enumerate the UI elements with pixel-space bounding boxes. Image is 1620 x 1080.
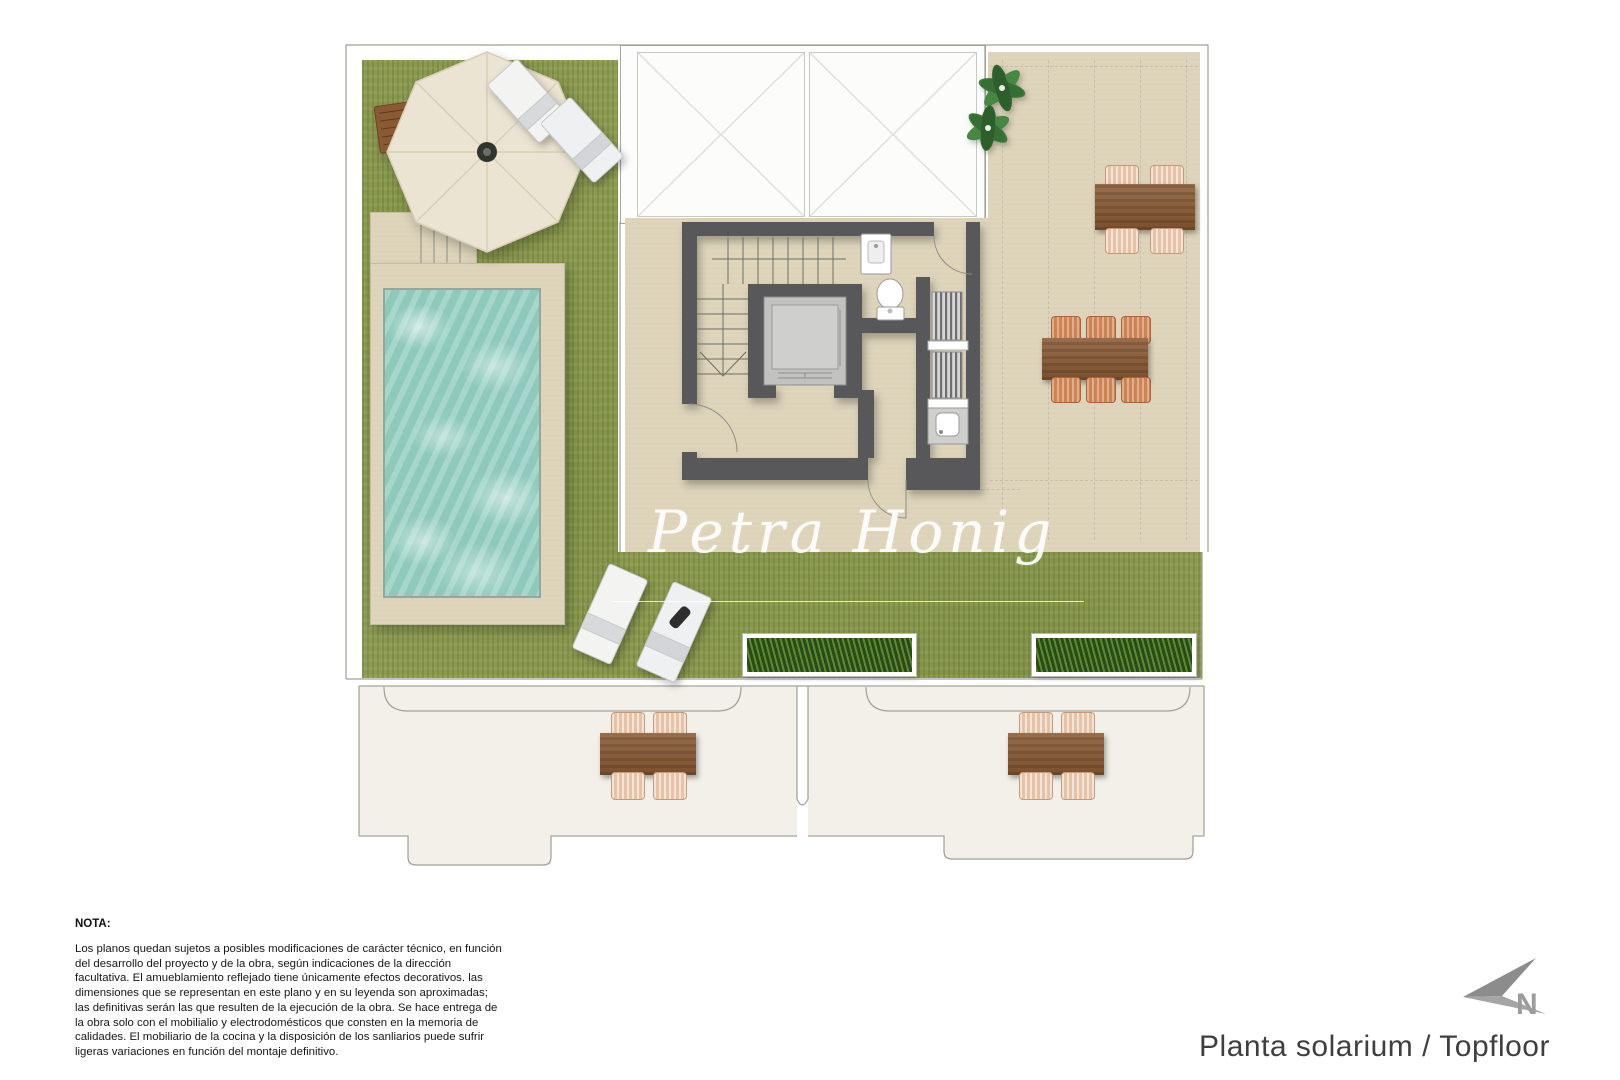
washbasin-icon — [861, 234, 891, 274]
watermark-underline — [612, 601, 1084, 602]
kitchen-grill — [932, 292, 962, 340]
umbrella-icon — [374, 52, 587, 252]
sun-lounger — [572, 563, 712, 682]
note-label: NOTA: — [75, 918, 111, 930]
plan-title: Planta solarium / Topfloor — [1140, 1030, 1550, 1064]
plant-icon — [964, 63, 1027, 152]
note-text: Los planos quedan sujetos a posibles mod… — [75, 942, 503, 1060]
kitchen-grill — [932, 352, 962, 398]
elevator — [764, 297, 846, 385]
watermark: Petra Honig — [648, 498, 1056, 566]
toilet-icon — [877, 279, 904, 320]
floor-plan-sheet: Petra Honig NOTA: Los planos quedan suje… — [0, 0, 1620, 1080]
north-label: N — [1516, 988, 1538, 1022]
